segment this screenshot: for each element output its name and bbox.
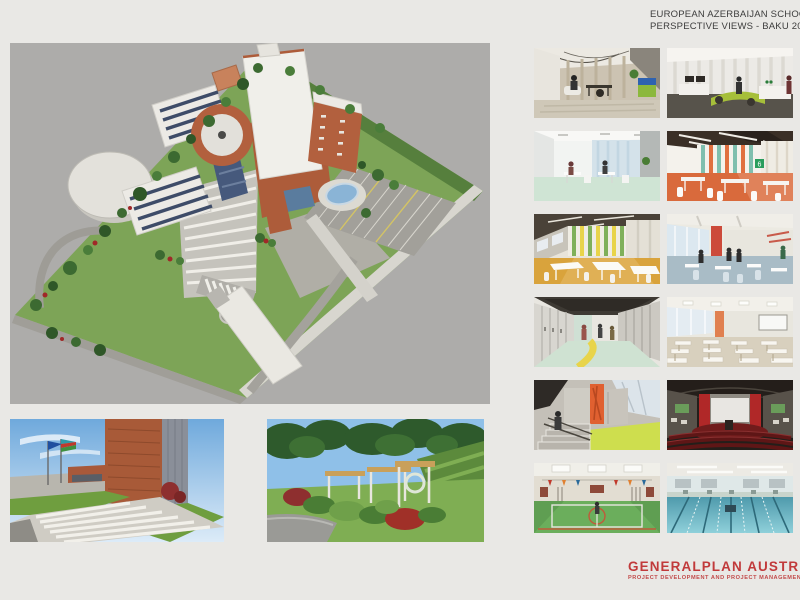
swimming-pool-outdoor: [318, 179, 366, 211]
garden-view-image: [267, 419, 484, 542]
interior-views-grid: 6: [534, 48, 793, 533]
aerial-panel: [10, 43, 490, 404]
brick-block-building: [308, 92, 362, 173]
board-title: EUROPEAN AZERBAIJAN SCHOOL 2 PERSPECTIVE…: [650, 9, 800, 32]
thumb-cafeteria-stripes: 6: [667, 131, 793, 201]
aerial-site-view-image: [10, 43, 490, 404]
thumb-gymnasium: [534, 463, 660, 533]
thumb-auditorium: [667, 380, 793, 450]
thumb-reception-lobby: [667, 48, 793, 118]
thumb-office-interior: [534, 48, 660, 118]
thumb-staircase: [534, 380, 660, 450]
logo-brand-text: GENERALPLAN AUSTRIA: [628, 559, 800, 574]
thumb-swimming-pool: [667, 463, 793, 533]
company-logo: GENERALPLAN AUSTRIA PROJECT DEVELOPMENT …: [628, 559, 800, 581]
title-line-2: PERSPECTIVE VIEWS - BAKU 2014: [650, 21, 800, 33]
thumb-classroom-rows: [667, 297, 793, 367]
title-line-1: EUROPEAN AZERBAIJAN SCHOOL 2: [650, 9, 800, 21]
thumb-meeting-room: [534, 131, 660, 201]
thumb-locker-corridor: [534, 297, 660, 367]
thumb-dining-hall-yellow: [534, 214, 660, 284]
svg-text:6: 6: [758, 162, 762, 169]
round-drum-building: [191, 104, 253, 166]
logo-tagline-text: PROJECT DEVELOPMENT AND PROJECT MANAGEME…: [628, 575, 800, 581]
entrance-view-image: [10, 419, 224, 542]
thumb-classroom-red-wall: [667, 214, 793, 284]
presentation-board: EUROPEAN AZERBAIJAN SCHOOL 2 PERSPECTIVE…: [0, 0, 800, 600]
